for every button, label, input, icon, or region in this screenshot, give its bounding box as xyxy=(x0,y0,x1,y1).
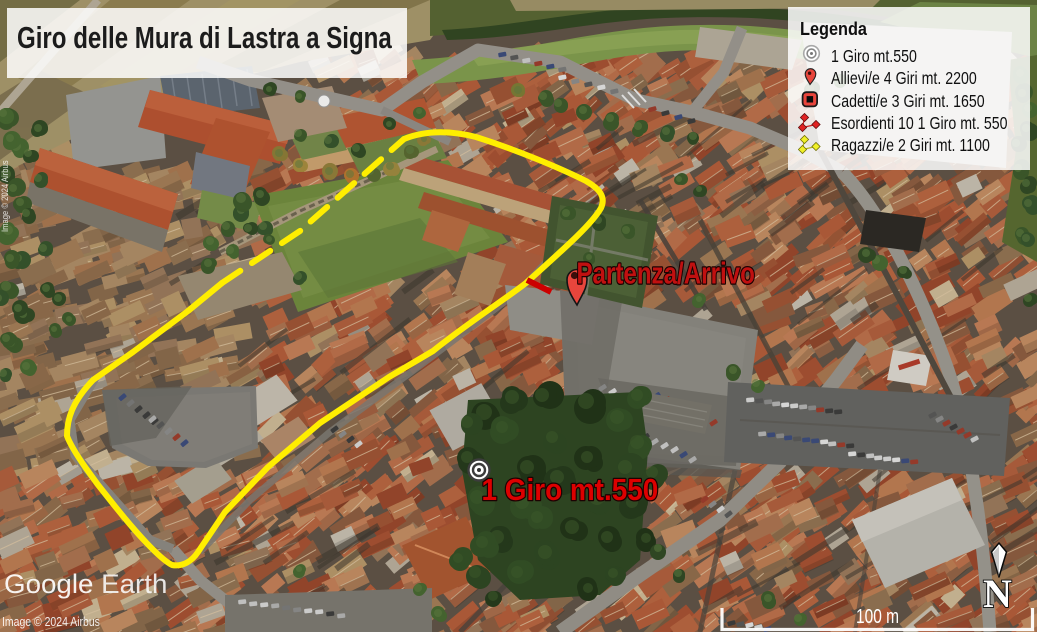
svg-text:Partenza/Arrivo: Partenza/Arrivo xyxy=(576,256,754,291)
svg-text:N: N xyxy=(983,571,1012,615)
svg-text:1 Giro mt.550: 1 Giro mt.550 xyxy=(482,473,659,508)
